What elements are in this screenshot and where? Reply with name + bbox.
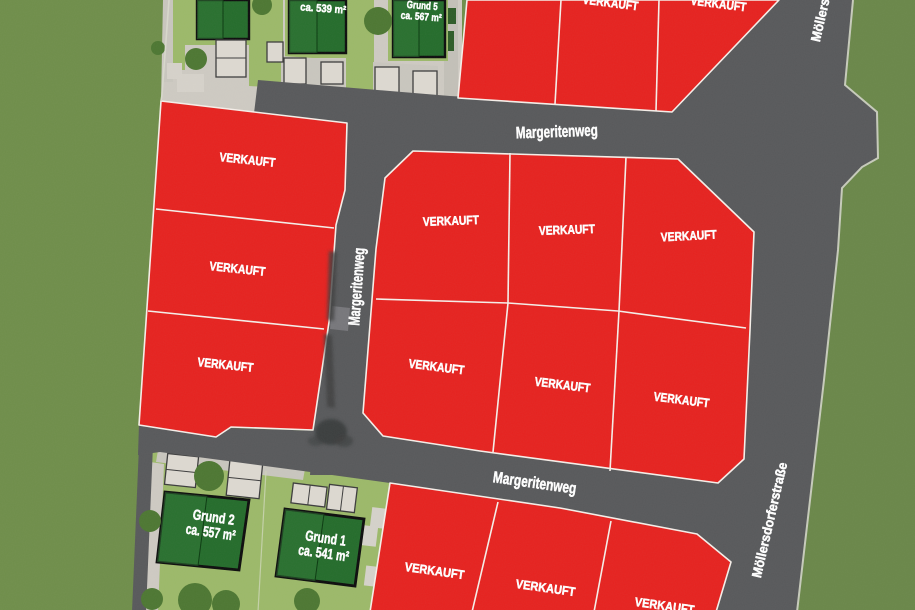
svg-text:VERKAUFT: VERKAUFT <box>423 213 480 229</box>
svg-text:VERKAUFT: VERKAUFT <box>539 222 596 238</box>
svg-text:Margeritenweg: Margeritenweg <box>516 122 599 143</box>
svg-text:VERKAUFT: VERKAUFT <box>660 228 717 245</box>
